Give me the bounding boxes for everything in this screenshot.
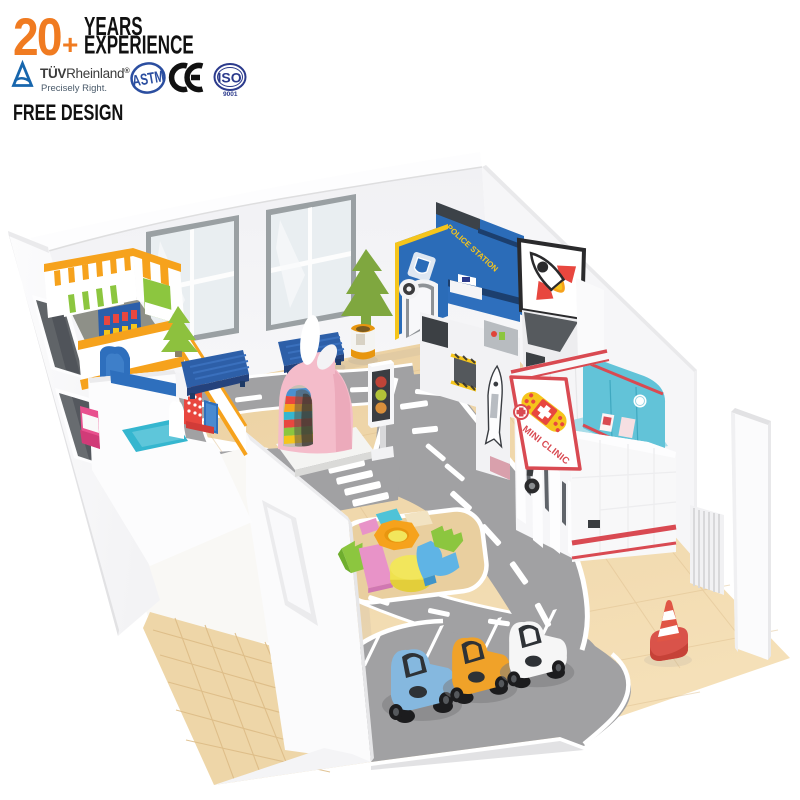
- svg-text:EXPERIENCE: EXPERIENCE: [84, 30, 194, 60]
- svg-text:+: +: [62, 29, 78, 60]
- svg-text:9001: 9001: [223, 91, 238, 98]
- svg-text:20: 20: [13, 7, 61, 67]
- svg-text:Precisely Right.: Precisely Right.: [41, 83, 107, 94]
- svg-text:TÜVRheinland®: TÜVRheinland®: [40, 66, 130, 81]
- svg-text:ISO: ISO: [218, 70, 242, 86]
- svg-text:FREE DESIGN: FREE DESIGN: [13, 101, 123, 126]
